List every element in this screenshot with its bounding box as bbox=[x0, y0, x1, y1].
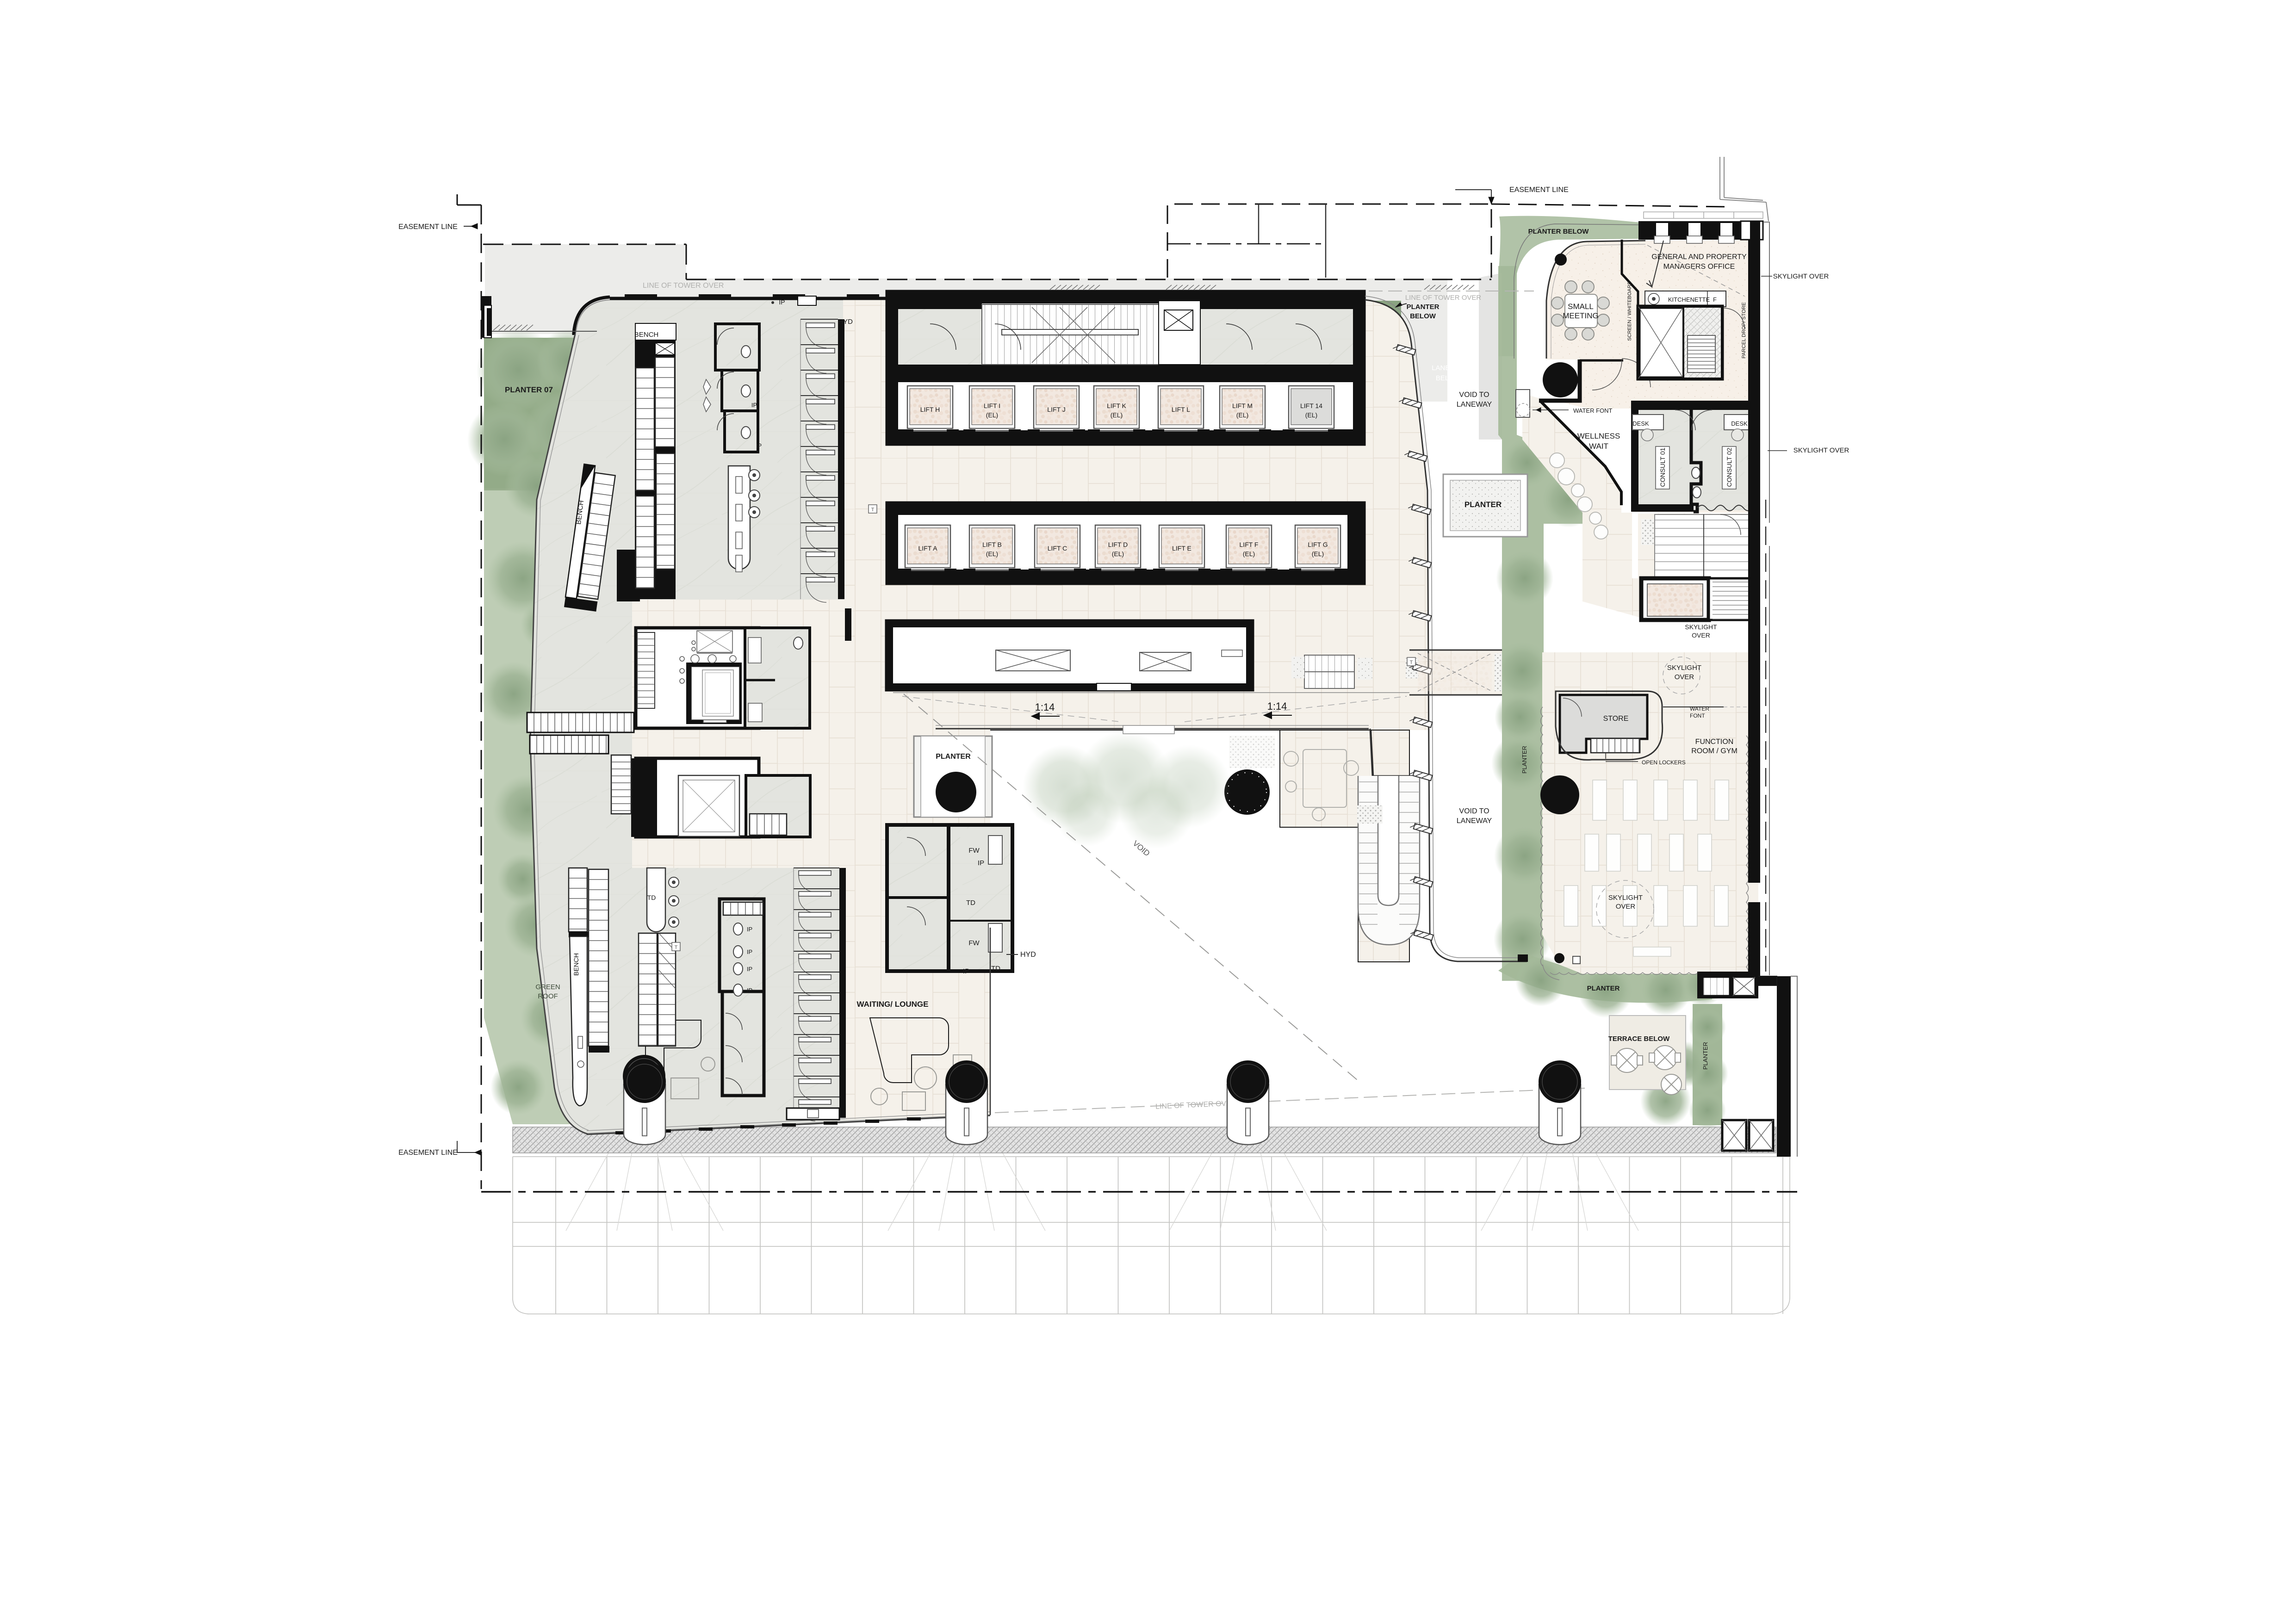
svg-text:PLANTER: PLANTER bbox=[1702, 1042, 1709, 1070]
svg-text:IP: IP bbox=[779, 298, 785, 306]
svg-text:VOID TO: VOID TO bbox=[1459, 807, 1489, 815]
svg-text:IP: IP bbox=[978, 859, 984, 867]
svg-text:IP: IP bbox=[747, 966, 752, 973]
svg-text:STORE: STORE bbox=[1603, 715, 1629, 723]
svg-text:SKYLIGHT: SKYLIGHT bbox=[1608, 894, 1643, 902]
svg-text:LANEWAY: LANEWAY bbox=[1457, 401, 1492, 409]
svg-text:LIFT H: LIFT H bbox=[920, 406, 940, 413]
svg-text:LIFT A: LIFT A bbox=[918, 545, 938, 552]
svg-text:LIFT 14: LIFT 14 bbox=[1300, 402, 1322, 409]
svg-text:LIFT E: LIFT E bbox=[1172, 545, 1191, 552]
svg-text:TERRACE BELOW: TERRACE BELOW bbox=[1608, 1035, 1670, 1043]
svg-text:ROOF: ROOF bbox=[538, 992, 558, 1000]
svg-text:MEETING: MEETING bbox=[1563, 311, 1598, 320]
svg-text:OPEN LOCKERS: OPEN LOCKERS bbox=[1642, 759, 1686, 766]
svg-text:VOID TO: VOID TO bbox=[1459, 391, 1489, 399]
svg-text:OVER: OVER bbox=[1692, 632, 1710, 639]
svg-text:EASEMENT LINE: EASEMENT LINE bbox=[398, 223, 458, 231]
svg-text:WAIT: WAIT bbox=[1589, 442, 1608, 451]
svg-text:LANEWAY: LANEWAY bbox=[1457, 817, 1492, 825]
svg-text:OVER: OVER bbox=[1616, 903, 1636, 911]
svg-text:TD: TD bbox=[966, 899, 975, 907]
svg-text:MANAGERS OFFICE: MANAGERS OFFICE bbox=[1663, 263, 1735, 271]
svg-text:TD: TD bbox=[991, 965, 1000, 973]
svg-text:LIFT B: LIFT B bbox=[982, 541, 1002, 548]
svg-text:BELOW: BELOW bbox=[1410, 312, 1436, 320]
svg-text:GREEN: GREEN bbox=[535, 983, 560, 991]
svg-text:LIFT K: LIFT K bbox=[1107, 402, 1126, 409]
svg-text:SKYLIGHT: SKYLIGHT bbox=[1667, 664, 1701, 672]
svg-text:EASEMENT LINE: EASEMENT LINE bbox=[1509, 186, 1569, 194]
svg-text:IP: IP bbox=[751, 402, 757, 409]
svg-text:GENERAL AND PROPERTY: GENERAL AND PROPERTY bbox=[1651, 253, 1747, 261]
svg-text:(EL): (EL) bbox=[1111, 411, 1123, 419]
svg-text:(EL): (EL) bbox=[1312, 550, 1324, 558]
svg-text:PLANTER: PLANTER bbox=[1587, 985, 1620, 992]
svg-text:BENCH: BENCH bbox=[572, 953, 580, 976]
svg-text:CONSULT 01: CONSULT 01 bbox=[1659, 447, 1666, 487]
svg-text:F: F bbox=[1713, 296, 1717, 303]
svg-text:LINE OF TOWER OVER: LINE OF TOWER OVER bbox=[643, 282, 724, 290]
svg-text:(EL): (EL) bbox=[1236, 411, 1248, 419]
svg-text:LIFT D: LIFT D bbox=[1108, 541, 1128, 548]
svg-text:IP: IP bbox=[963, 967, 969, 975]
svg-text:(EL): (EL) bbox=[1305, 411, 1317, 419]
svg-text:DESK: DESK bbox=[1632, 420, 1649, 427]
svg-text:PLANTER BELOW: PLANTER BELOW bbox=[1528, 228, 1589, 235]
svg-text:BENCH: BENCH bbox=[634, 331, 659, 339]
svg-text:SMALL: SMALL bbox=[1568, 302, 1594, 311]
svg-text:PLANTER 07: PLANTER 07 bbox=[505, 385, 553, 394]
svg-text:PLANTER: PLANTER bbox=[1464, 500, 1502, 509]
svg-text:LIFT L: LIFT L bbox=[1172, 406, 1190, 413]
svg-text:BELOW: BELOW bbox=[1436, 374, 1461, 382]
svg-text:LIFT C: LIFT C bbox=[1048, 545, 1067, 552]
svg-text:FONT: FONT bbox=[1690, 712, 1705, 719]
svg-text:PARCEL DROP/ STORE: PARCEL DROP/ STORE bbox=[1741, 302, 1747, 358]
svg-text:IP: IP bbox=[756, 442, 762, 449]
svg-text:SKYLIGHT: SKYLIGHT bbox=[1685, 623, 1717, 631]
svg-text:LIFT I: LIFT I bbox=[984, 402, 1000, 409]
svg-text:LIFT F: LIFT F bbox=[1240, 541, 1259, 548]
svg-text:SKYLIGHT OVER: SKYLIGHT OVER bbox=[1793, 446, 1849, 454]
svg-text:DESK: DESK bbox=[1731, 420, 1748, 427]
svg-text:(EL): (EL) bbox=[1112, 550, 1124, 558]
svg-text:SCREEN / WHITEBOARD: SCREEN / WHITEBOARD bbox=[1627, 281, 1632, 341]
svg-text:CONSULT 02: CONSULT 02 bbox=[1725, 447, 1733, 487]
svg-text:T: T bbox=[1410, 660, 1413, 665]
svg-text:EASEMENT LINE: EASEMENT LINE bbox=[398, 1149, 458, 1157]
svg-text:LINE OF TOWER OVER: LINE OF TOWER OVER bbox=[1405, 294, 1482, 302]
svg-text:PLANTER: PLANTER bbox=[936, 753, 971, 761]
svg-text:OVER: OVER bbox=[1675, 673, 1694, 681]
svg-text:HYD: HYD bbox=[838, 318, 853, 326]
svg-text:IP: IP bbox=[747, 948, 752, 955]
svg-text:(EL): (EL) bbox=[986, 550, 998, 558]
svg-text:FW: FW bbox=[968, 847, 980, 855]
svg-text:WELLNESS: WELLNESS bbox=[1577, 432, 1620, 440]
svg-text:(EL): (EL) bbox=[1243, 550, 1255, 558]
svg-text:T: T bbox=[871, 507, 875, 513]
svg-text:WAITING/ LOUNGE: WAITING/ LOUNGE bbox=[857, 1000, 929, 1009]
svg-text:1:14: 1:14 bbox=[1035, 701, 1055, 713]
svg-text:FUNCTION: FUNCTION bbox=[1695, 738, 1734, 746]
svg-text:ROOM / GYM: ROOM / GYM bbox=[1691, 747, 1738, 755]
svg-text:LIFT J: LIFT J bbox=[1047, 406, 1065, 413]
svg-text:WATER: WATER bbox=[1690, 706, 1709, 712]
svg-text:IP: IP bbox=[747, 926, 752, 933]
svg-text:LIFT G: LIFT G bbox=[1308, 541, 1328, 548]
svg-text:WATER FONT: WATER FONT bbox=[1573, 407, 1613, 414]
svg-text:PLANTER: PLANTER bbox=[1407, 303, 1440, 311]
svg-text:PLANTER: PLANTER bbox=[1521, 746, 1528, 774]
svg-text:LIFT M: LIFT M bbox=[1232, 402, 1253, 409]
svg-text:KITCHENETTE: KITCHENETTE bbox=[1668, 296, 1710, 303]
svg-text:SKYLIGHT OVER: SKYLIGHT OVER bbox=[1773, 273, 1829, 280]
svg-text:FW: FW bbox=[968, 939, 980, 947]
svg-text:TD: TD bbox=[647, 894, 656, 901]
svg-text:T: T bbox=[675, 945, 678, 950]
svg-text:1:14: 1:14 bbox=[1267, 700, 1287, 712]
svg-text:HYD: HYD bbox=[1020, 951, 1036, 959]
svg-text:(EL): (EL) bbox=[986, 411, 998, 419]
svg-text:IP: IP bbox=[747, 987, 752, 994]
svg-text:LANEWAY: LANEWAY bbox=[1432, 364, 1465, 372]
